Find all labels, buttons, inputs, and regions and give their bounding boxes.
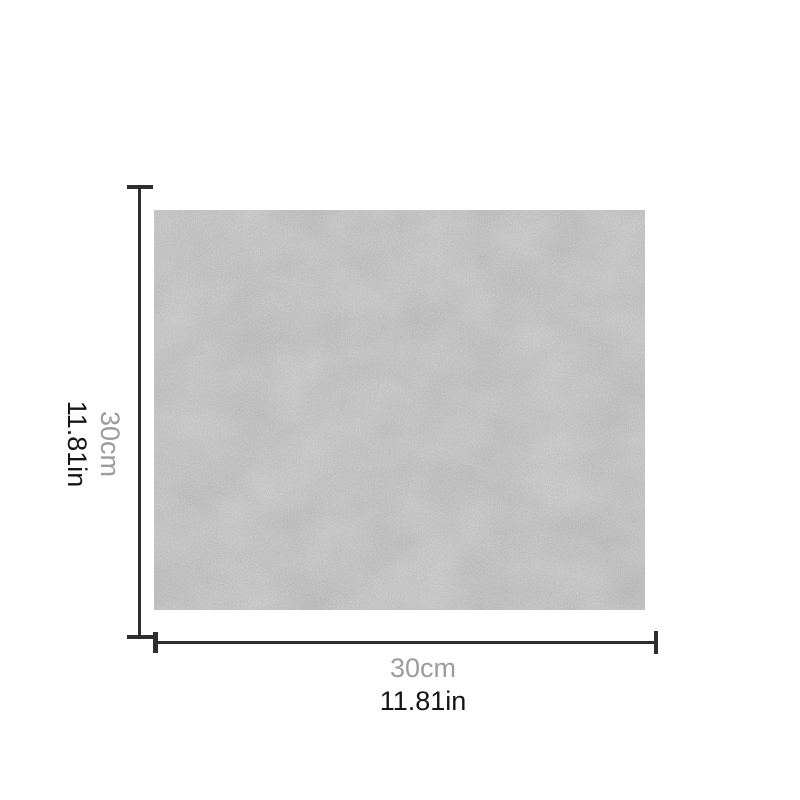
width-dimension-left-cap [153, 632, 158, 653]
height-imperial-value: 11.81in [60, 384, 93, 504]
width-dimension-right-cap [654, 631, 658, 654]
height-dimension-label: 30cm 11.81in [60, 384, 126, 504]
height-metric-value: 30cm [93, 384, 126, 504]
width-metric-value: 30cm [323, 652, 523, 685]
width-dimension-line [155, 641, 657, 644]
product-dimension-image: 30cm 11.81in 30cm 11.81in [0, 0, 800, 800]
width-imperial-value: 11.81in [323, 685, 523, 718]
height-dimension-top-cap [127, 185, 153, 189]
height-dimension-bottom-cap [127, 635, 153, 639]
fabric-swatch-image [154, 210, 645, 610]
height-dimension-line [138, 187, 141, 639]
width-dimension-label: 30cm 11.81in [323, 652, 523, 718]
